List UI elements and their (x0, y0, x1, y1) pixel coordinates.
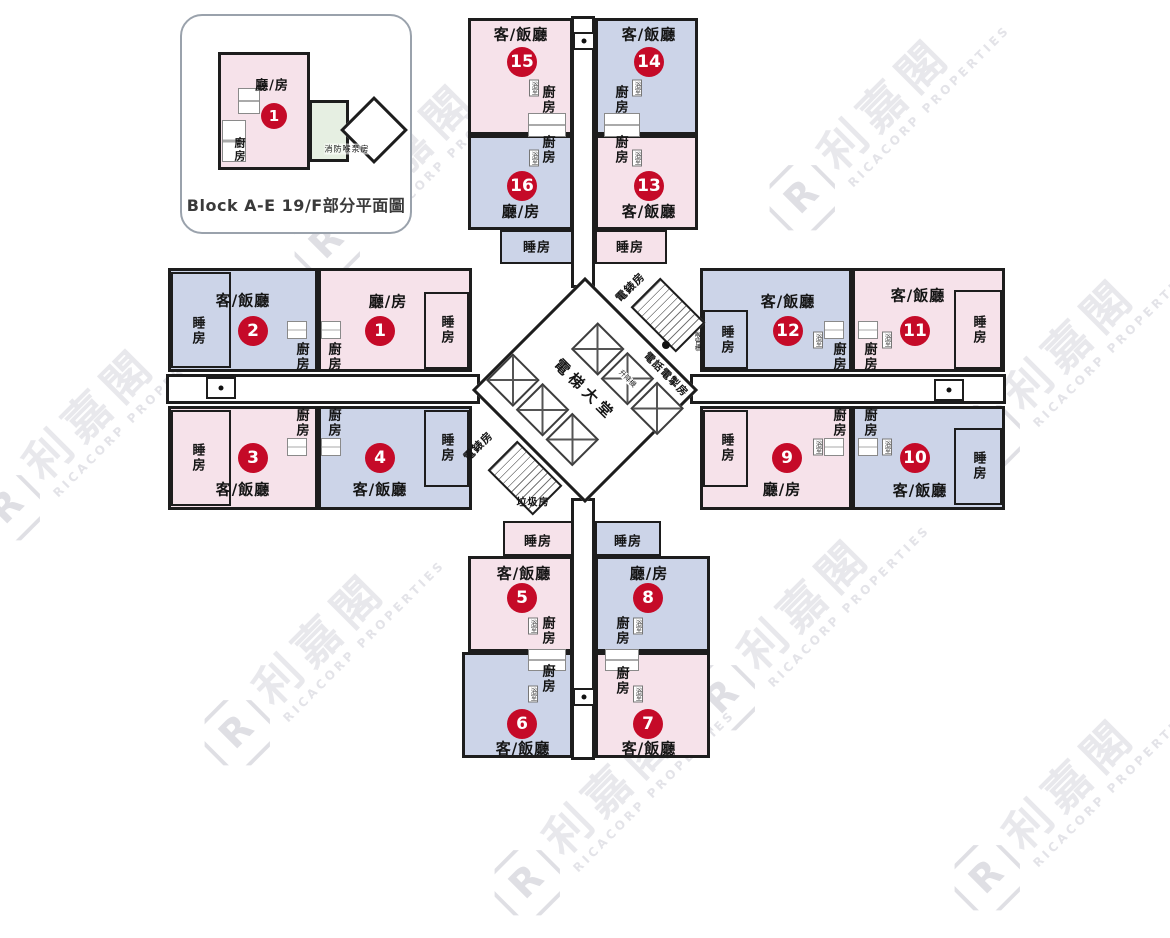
room-label-living: 客/飯廳 (496, 738, 550, 759)
room-label-kitchen: 廚房 (829, 408, 848, 438)
room-label-living: 客/飯廳 (891, 285, 945, 306)
room-label-living: 客/飯廳 (353, 479, 407, 500)
refuse-room-label: 垃圾房 (517, 494, 550, 509)
room-label-bath: 浴室 (529, 80, 539, 97)
room-label-bath: 浴室 (633, 686, 643, 703)
room-label-bath: 浴室 (529, 150, 539, 167)
unit-number-badge: 8 (633, 583, 663, 613)
inset-pump-room-label: 消防喉泵房 (325, 144, 370, 155)
room-label-kitchen: 廚房 (538, 616, 557, 646)
room-label-bedroom: 睡房 (523, 237, 551, 256)
kitchen-counter (604, 113, 640, 137)
inset-unit-number-badge: 1 (261, 103, 287, 129)
room-label-kitchen: 廚房 (324, 342, 343, 372)
room-label-bath: 浴室 (632, 150, 642, 167)
watermark-en: RICACORP PROPERTIES (845, 22, 1013, 190)
unit-number-badge: 9 (772, 443, 802, 473)
watermark: R 利嘉閣RICACORP PROPERTIES (747, 0, 1023, 253)
room-label-living: 客/飯廳 (216, 479, 270, 500)
unit-number-badge: 5 (507, 583, 537, 613)
ricacorp-logo-icon: R (481, 836, 574, 929)
room-label-kitchen: 廚房 (860, 342, 879, 372)
unit-number-badge: 14 (634, 47, 664, 77)
watermark-cn: 利嘉閣 (810, 0, 1002, 179)
duct-dot-icon (662, 341, 670, 349)
room-label-kitchen: 廚房 (292, 342, 311, 372)
watermark-cn: 利嘉閣 (995, 227, 1170, 419)
room-label-living: 客/飯廳 (622, 24, 676, 45)
corridor-bottom (571, 498, 595, 760)
room-label-living: 客/飯廳 (216, 290, 270, 311)
room-label-bath: 浴室 (813, 332, 823, 349)
room-label-kitchen: 廚房 (860, 408, 879, 438)
inset-kitchen-label: 廚房 (231, 137, 247, 163)
room-label-bath: 浴室 (528, 686, 538, 703)
room-label-bedroom: 睡房 (614, 531, 642, 550)
room-label-bath: 浴室 (528, 618, 538, 635)
room-label-kitchen: 廚房 (829, 342, 848, 372)
duct-dot-icon (582, 39, 587, 44)
room-label-bedroom: 睡房 (437, 315, 456, 345)
room-label-bath: 浴室 (813, 439, 823, 456)
room-label-bath: 浴室 (632, 80, 642, 97)
room-label-living: 客/飯廳 (622, 738, 676, 759)
room-label-kitchen: 廚房 (538, 85, 557, 115)
ricacorp-logo-icon: R (941, 831, 1034, 924)
floorplan-page: { "inset": { "caption": "Block A-E 19/F部… (0, 0, 1170, 785)
unit-number-badge: 4 (365, 443, 395, 473)
room-label-kitchen: 廚房 (611, 135, 630, 165)
watermark-cn: 利嘉閣 (730, 487, 922, 679)
room-label-bedroom: 睡房 (717, 433, 736, 463)
room-label-living: 廳/房 (369, 291, 407, 312)
service-duct (573, 32, 595, 50)
watermark: R 利嘉閣RICACORP PROPERTIES (932, 657, 1170, 933)
room-label-living: 客/飯廳 (497, 563, 551, 584)
room-label-kitchen: 廚房 (612, 666, 631, 696)
service-duct (934, 379, 964, 401)
unit-number-badge: 1 (365, 316, 395, 346)
bathroom-fixture (321, 321, 341, 339)
unit-number-badge: 3 (238, 443, 268, 473)
watermark-cn: 利嘉閣 (245, 522, 437, 714)
inset-caption: Block A-E 19/F部分平面圖 (182, 192, 410, 216)
room-label-bedroom: 睡房 (437, 433, 456, 463)
room-label-living: 廳/房 (630, 563, 668, 584)
corridor-top (571, 16, 595, 288)
watermark-text: 利嘉閣RICACORP PROPERTIES (995, 227, 1170, 430)
bathroom-fixture (858, 321, 878, 339)
service-duct (206, 377, 236, 399)
room-label-bedroom: 睡房 (616, 237, 644, 256)
room-label-living: 客/飯廳 (622, 201, 676, 222)
room-label-bath: 浴室 (633, 618, 643, 635)
room-label-bedroom: 睡房 (188, 443, 207, 473)
room-label-bedroom: 睡房 (969, 315, 988, 345)
watermark-en: RICACORP PROPERTIES (1030, 262, 1170, 430)
bathroom-fixture (824, 438, 844, 456)
bathroom-fixture (858, 438, 878, 456)
unit-number-badge: 13 (634, 171, 664, 201)
room-label-bedroom: 睡房 (188, 316, 207, 346)
unit-number-badge: 6 (507, 709, 537, 739)
room-label-kitchen: 廚房 (612, 616, 631, 646)
room-label-bath: 浴室 (882, 332, 892, 349)
room-label-kitchen: 廚房 (538, 135, 557, 165)
pipe-duct-label: 喉管槽 (692, 331, 702, 351)
bathroom-fixture (287, 438, 307, 456)
duct-dot-icon (582, 695, 587, 700)
legend-inset: 廳/房 1 廚房 消防喉泵房 Block A-E 19/F部分平面圖 (180, 14, 412, 234)
room-label-kitchen: 廚房 (324, 408, 343, 438)
service-duct (573, 688, 595, 706)
room-label-bedroom: 睡房 (717, 325, 736, 355)
watermark-text: 利嘉閣RICACORP PROPERTIES (730, 487, 933, 690)
room-label-living: 廳/房 (502, 201, 540, 222)
watermark-en: RICACORP PROPERTIES (280, 557, 448, 725)
unit-number-badge: 7 (633, 709, 663, 739)
room-label-living: 客/飯廳 (494, 24, 548, 45)
unit-number-badge: 10 (900, 443, 930, 473)
room-label-kitchen: 廚房 (292, 408, 311, 438)
watermark-text: 利嘉閣RICACORP PROPERTIES (810, 0, 1013, 190)
ricacorp-logo-icon: R (756, 151, 849, 244)
watermark-text: 利嘉閣RICACORP PROPERTIES (245, 522, 448, 725)
duct-dot-icon (947, 388, 952, 393)
unit-number-badge: 11 (900, 316, 930, 346)
room-label-kitchen: 廚房 (538, 664, 557, 694)
inset-living-label: 廳/房 (255, 75, 289, 94)
room-label-living: 客/飯廳 (893, 480, 947, 501)
room-label-living: 廳/房 (763, 479, 801, 500)
unit-number-badge: 12 (773, 316, 803, 346)
bathroom-fixture (287, 321, 307, 339)
watermark-cn: 利嘉閣 (995, 667, 1170, 859)
unit-number-badge: 2 (238, 316, 268, 346)
kitchen-counter (528, 113, 566, 137)
watermark-text: 利嘉閣RICACORP PROPERTIES (995, 667, 1170, 870)
bathroom-fixture (321, 438, 341, 456)
watermark-en: RICACORP PROPERTIES (765, 522, 933, 690)
lift-label: 升降機 (617, 368, 638, 389)
watermark: R 利嘉閣RICACORP PROPERTIES (182, 512, 458, 788)
ricacorp-logo-icon: R (0, 461, 54, 554)
unit-number-badge: 16 (507, 171, 537, 201)
room-label-kitchen: 廚房 (611, 85, 630, 115)
bathroom-fixture (824, 321, 844, 339)
unit-number-badge: 15 (507, 47, 537, 77)
room-label-living: 客/飯廳 (761, 291, 815, 312)
ricacorp-logo-icon: R (191, 686, 284, 779)
duct-dot-icon (219, 386, 224, 391)
room-label-bedroom: 睡房 (969, 451, 988, 481)
watermark-en: RICACORP PROPERTIES (1030, 702, 1170, 870)
room-label-bedroom: 睡房 (524, 531, 552, 550)
room-label-bath: 浴室 (882, 439, 892, 456)
